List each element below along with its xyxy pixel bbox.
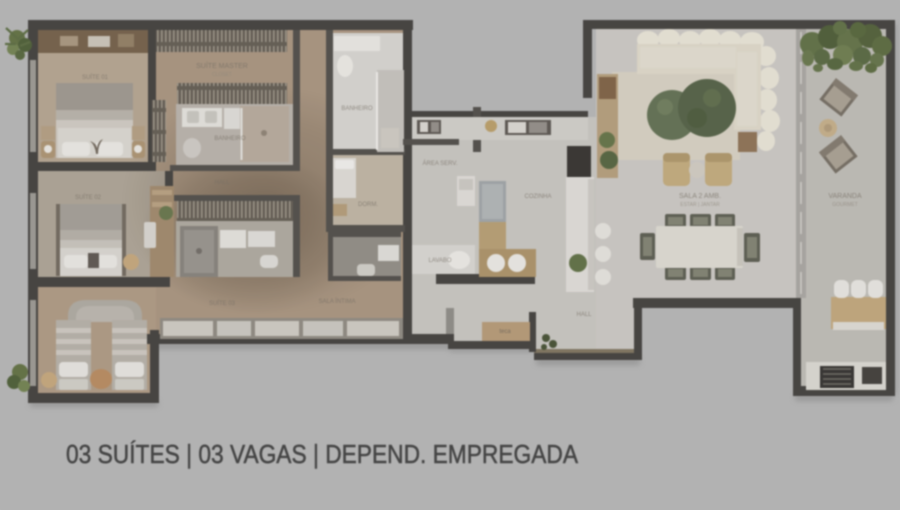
- svg-text:03 SUÍTES | 03 VAGAS | DEPEND.: 03 SUÍTES | 03 VAGAS | DEPEND. EMPREGADA: [66, 439, 579, 469]
